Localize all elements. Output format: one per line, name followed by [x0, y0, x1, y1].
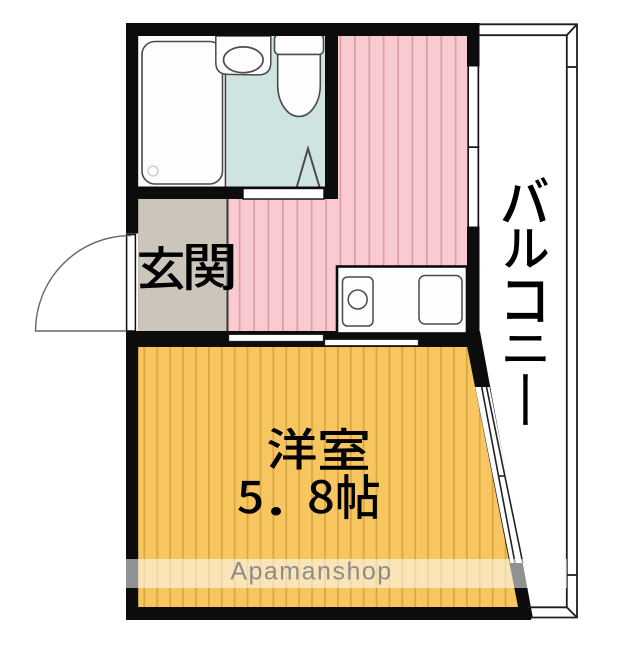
- svg-text:Apamanshop: Apamanshop: [230, 558, 392, 586]
